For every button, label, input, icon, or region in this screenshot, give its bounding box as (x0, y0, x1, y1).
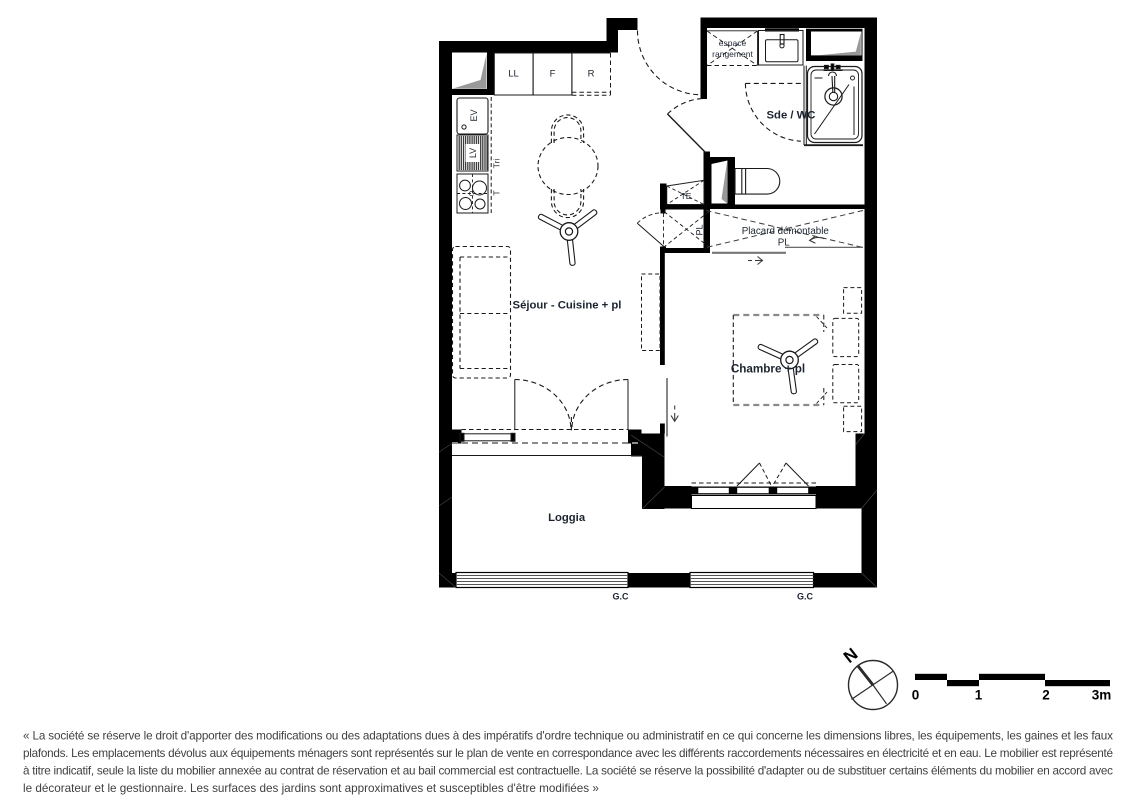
svg-text:T: T (492, 190, 502, 195)
svg-text:2: 2 (1042, 688, 1050, 703)
svg-text:1: 1 (975, 688, 983, 703)
svg-text:PL: PL (778, 238, 791, 249)
svg-text:Chambre + pl: Chambre + pl (731, 363, 805, 376)
svg-text:G.C: G.C (797, 592, 814, 602)
svg-text:Tri: Tri (492, 159, 502, 169)
svg-text:PL: PL (695, 224, 705, 235)
svg-text:Loggia: Loggia (548, 512, 586, 524)
svg-text:rangement: rangement (712, 49, 753, 59)
svg-text:0: 0 (912, 688, 920, 703)
svg-text:Séjour - Cuisine + pl: Séjour - Cuisine + pl (513, 300, 622, 312)
svg-text:à titre indicatif, seule la li: à titre indicatif, seule la liste du mob… (23, 764, 1113, 777)
svg-text:« La société se réserve le dro: « La société se réserve le droit d'appor… (23, 729, 1113, 742)
svg-text:C: C (469, 189, 475, 198)
svg-text:R: R (588, 69, 595, 80)
svg-text:Placard démontable: Placard démontable (742, 226, 830, 237)
svg-text:TE: TE (681, 191, 692, 201)
svg-text:3m: 3m (1092, 688, 1112, 703)
svg-text:EV: EV (469, 109, 479, 121)
svg-text:F: F (550, 69, 556, 80)
svg-text:LV: LV (468, 148, 478, 158)
svg-text:G.C: G.C (612, 592, 629, 602)
svg-text:LL: LL (508, 69, 519, 80)
svg-text:le décorateur et le gestionnai: le décorateur et le gestionnaire. Les su… (23, 782, 599, 795)
svg-text:plafonds. Les emplacements dév: plafonds. Les emplacements dévolus aux é… (23, 747, 1113, 760)
svg-text:Sde / WC: Sde / WC (767, 110, 816, 122)
svg-text:espace: espace (719, 38, 747, 48)
